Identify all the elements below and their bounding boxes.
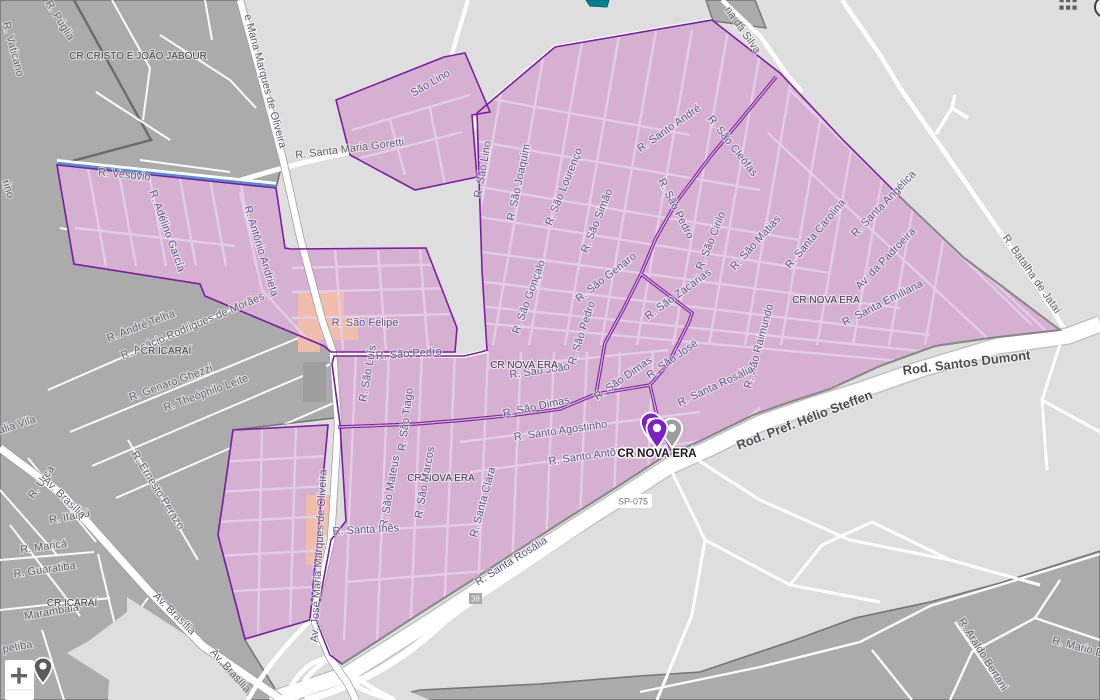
svg-text:38: 38 xyxy=(471,595,480,604)
svg-text:SP-075: SP-075 xyxy=(618,497,648,507)
svg-text:CR CRISTO E JOÃO JABOUR: CR CRISTO E JOÃO JABOUR xyxy=(69,49,207,62)
svg-text:CR NOVA ERA: CR NOVA ERA xyxy=(407,473,475,484)
svg-text:CR NOVA ERA: CR NOVA ERA xyxy=(792,295,860,306)
svg-text:CR NOVA ERA: CR NOVA ERA xyxy=(617,448,696,460)
svg-text:CR ICARAÍ: CR ICARAÍ xyxy=(47,596,98,609)
svg-text:CR ICARAÍ: CR ICARAÍ xyxy=(141,344,192,357)
svg-text:R. São Felipe: R. São Felipe xyxy=(332,317,399,329)
svg-text:CR NOVA ERA: CR NOVA ERA xyxy=(490,360,558,371)
